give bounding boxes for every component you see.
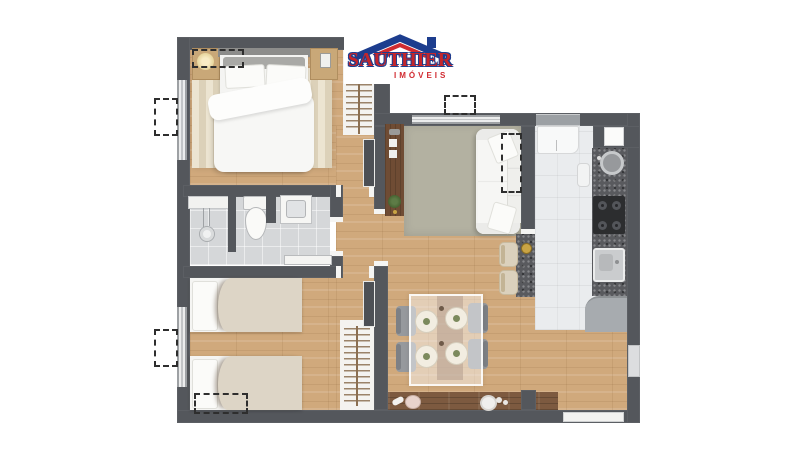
ac-marker-top [444, 95, 476, 115]
shelf-dot-1 [496, 397, 502, 403]
plant-decor-dot [393, 210, 397, 214]
table-condiment-2 [439, 341, 444, 346]
cooktop [593, 196, 625, 234]
place-setting-4 [445, 342, 468, 365]
table-condiment-1 [439, 306, 444, 311]
bathroom-door-jamb-top [330, 217, 343, 222]
shower-divider [228, 193, 236, 252]
bar-stool-1 [499, 242, 518, 267]
refrigerator [537, 126, 579, 154]
shower-head [199, 226, 215, 242]
tv-decor-1 [389, 139, 397, 147]
master-door-jamb-left [336, 185, 341, 197]
place-setting-2 [445, 307, 468, 330]
kitchen-bin [577, 163, 590, 187]
agency-logo: SAUTHIER IMÓVEIS [344, 34, 456, 84]
master-window [177, 80, 187, 160]
round-sink [600, 151, 624, 175]
bar-decor-bowl [521, 243, 532, 254]
hanger-lines [344, 328, 370, 404]
bottom-window-sill [563, 412, 624, 422]
shelf-dot-2 [503, 400, 508, 405]
second-wardrobe-rack [342, 326, 372, 406]
kitchen-lower-cabinet [585, 296, 627, 332]
twin-bed-1-blanket [218, 278, 302, 332]
second-bedroom-window [177, 307, 187, 387]
refrigerator-handle [556, 140, 557, 151]
square-sink-basin [599, 254, 613, 271]
second-bedroom-door-leaf [363, 281, 375, 327]
wall-hall-east-lower [374, 266, 388, 410]
kitchen-side-window [628, 345, 640, 377]
burner-4 [612, 221, 621, 230]
burner-2 [612, 201, 621, 210]
square-sink-faucet [615, 260, 619, 264]
twin-bed-1-pillow [192, 281, 218, 331]
second-bedroom-door-jamb-left [336, 266, 341, 278]
wall-bathroom-south [183, 266, 341, 278]
water-heater [604, 127, 624, 146]
nightstand-decor [320, 53, 331, 68]
master-door-leaf [363, 139, 375, 187]
brand-name: SAUTHIER [344, 50, 456, 70]
tv-decor-2 [389, 150, 397, 158]
ac-marker-left-lower [154, 329, 178, 367]
burner-1 [598, 201, 607, 210]
brand-tagline: IMÓVEIS [394, 71, 448, 80]
shelf-bowl-pink [405, 395, 421, 409]
wall-living-kitchen-divider [521, 126, 535, 234]
wall-balcony-stub [521, 390, 536, 410]
burner-3 [598, 221, 607, 230]
bath-partition [266, 193, 276, 223]
bathroom-door-leaf [284, 255, 332, 265]
shower-hose-2 [209, 208, 210, 226]
hall-opening-jamb-bottom [374, 261, 388, 266]
ac-marker-sofa [501, 133, 522, 193]
living-room-window [412, 115, 500, 124]
floor-plan-canvas: SAUTHIER IMÓVEIS [0, 0, 800, 450]
second-bedroom-door-jamb-right [369, 266, 374, 278]
bar-stool-2 [499, 270, 518, 295]
ac-marker-left-upper [154, 98, 178, 136]
ac-marker-twin-bed [194, 393, 248, 414]
place-setting-3 [415, 345, 438, 368]
vanity-basin [286, 200, 306, 218]
round-sink-faucet [597, 156, 601, 160]
tv-speaker [389, 129, 400, 135]
plant [388, 195, 401, 208]
shower-hose [203, 208, 204, 228]
entry-door [536, 114, 580, 126]
place-setting-1 [415, 310, 438, 333]
shelf-bowl-white [480, 395, 497, 411]
ac-marker-master-nightstand [192, 49, 244, 68]
dining-table-glass [409, 294, 483, 386]
